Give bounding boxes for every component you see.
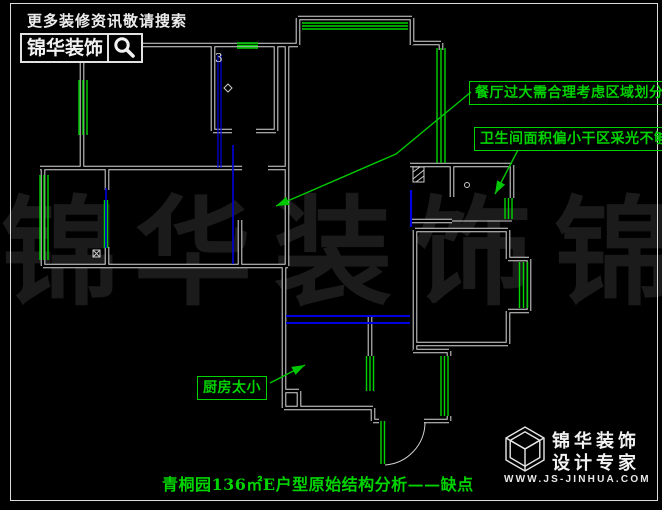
annotation-kitchen: 厨房太小 — [197, 376, 267, 400]
circle-marker — [465, 183, 470, 188]
cad-markers: 3 — [93, 51, 470, 257]
diamond-marker — [224, 84, 232, 92]
leader-dining — [276, 92, 471, 206]
blue-lines — [106, 55, 411, 323]
arrow-bathroom — [495, 180, 505, 194]
room-tag-label: 3 — [215, 51, 223, 65]
annotation-bathroom: 卫生间面积偏小干区采光不够 — [474, 127, 662, 151]
search-box[interactable]: 锦华装饰 — [20, 33, 143, 63]
arrow-kitchen — [291, 365, 305, 375]
door-leaves — [105, 200, 385, 464]
cad-floorplan-screenshot: 锦 华 装 饰 锦 — [0, 0, 662, 510]
magnifier-icon — [112, 35, 138, 61]
plan-caption: 青桐园136㎡E户型原始结构分析——缺点 — [162, 471, 474, 495]
search-button[interactable] — [109, 35, 141, 61]
logo-slogan: 设计专家 — [552, 449, 640, 475]
search-brand-text: 锦华装饰 — [22, 35, 107, 61]
isometric-cube-logo-icon — [500, 424, 550, 474]
walls-inner — [40, 18, 529, 421]
logo-website-url: WWW.JS-JINHUA.COM — [504, 474, 651, 485]
header-tagline: 更多装修资讯敬请搜索 — [27, 10, 187, 31]
annotation-dining: 餐厅过大需合理考虑区域划分 — [469, 81, 662, 105]
entry-door-arc — [385, 422, 425, 465]
